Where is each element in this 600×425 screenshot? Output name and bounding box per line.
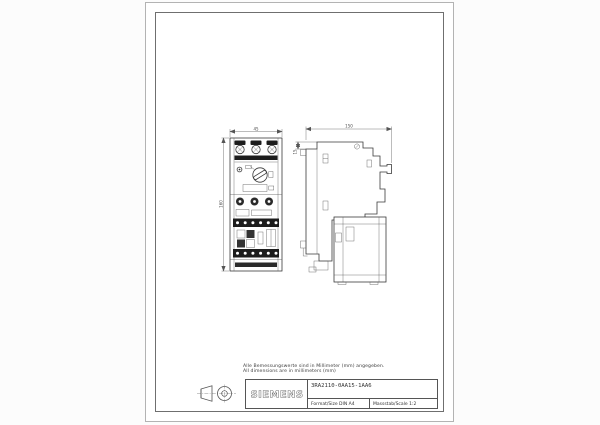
note-line-en: All dimensions are in millimeters (mm): [243, 369, 403, 374]
first-angle-projection-icon: [196, 382, 238, 406]
side-contactor-block: [334, 217, 386, 285]
dimension-notes: Alle Bemessungswerte sind in Millimeter …: [243, 364, 403, 375]
drawing-sheet: 45 160: [145, 2, 454, 422]
side-offset-label: 15: [293, 149, 298, 155]
front-contactor-band-a: [233, 219, 279, 228]
side-depth-label: 150: [345, 124, 353, 129]
side-lower-mechanism: [309, 261, 328, 272]
siemens-logo-text: SIEMENS: [250, 390, 303, 401]
technical-drawing: 45 160: [146, 3, 455, 423]
front-width-dimension: 45: [230, 126, 282, 137]
front-terminal-band-top: [235, 156, 278, 161]
front-link-terminals: [236, 198, 273, 206]
front-height-label: 160: [219, 200, 224, 208]
front-view: 45 160: [219, 126, 283, 271]
front-contactor-band-b: [233, 249, 279, 258]
front-top-terminals: [235, 141, 278, 154]
front-height-dimension: 160: [219, 138, 230, 271]
brand-cell: SIEMENS: [246, 380, 308, 408]
title-block: SIEMENS 3RA2110-0AA15-1AA6 Format/Size D…: [245, 379, 438, 409]
siemens-logo: SIEMENS: [248, 386, 306, 402]
front-bottom-strip: [235, 263, 277, 268]
front-width-label: 45: [253, 126, 259, 131]
part-number: 3RA2110-0AA15-1AA6: [308, 380, 438, 398]
format-cell: Format/Size DIN A4: [308, 398, 369, 408]
scale-cell: Massstab/Scale 1:2: [369, 398, 438, 408]
side-view: 150 15: [293, 124, 392, 285]
